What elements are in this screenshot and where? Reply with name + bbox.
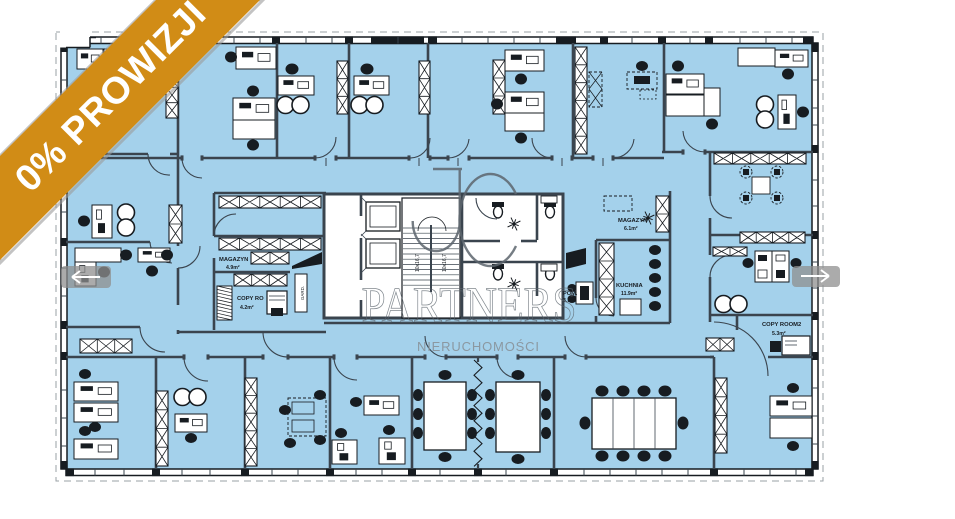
svg-text:4.9m²: 4.9m² (226, 265, 240, 271)
svg-text:KUCHNIA: KUCHNIA (616, 283, 644, 289)
svg-text:MAGAZYN: MAGAZYN (618, 218, 647, 224)
svg-text:PARTNERS: PARTNERS (362, 278, 577, 334)
svg-text:11.9m²: 11.9m² (621, 291, 637, 297)
svg-text:MAGAZYN: MAGAZYN (219, 257, 248, 263)
svg-text:4.2m²: 4.2m² (240, 305, 254, 311)
svg-text:COPY RO: COPY RO (237, 296, 264, 302)
svg-text:10x16,7: 10x16,7 (415, 254, 421, 272)
svg-text:6.1m²: 6.1m² (624, 226, 638, 232)
svg-text:10x16,7: 10x16,7 (442, 254, 448, 272)
svg-text:GARD.: GARD. (300, 286, 305, 300)
svg-text:NIERUCHOMOŚCI: NIERUCHOMOŚCI (417, 339, 541, 354)
svg-text:COPY ROOM2: COPY ROOM2 (762, 322, 801, 328)
